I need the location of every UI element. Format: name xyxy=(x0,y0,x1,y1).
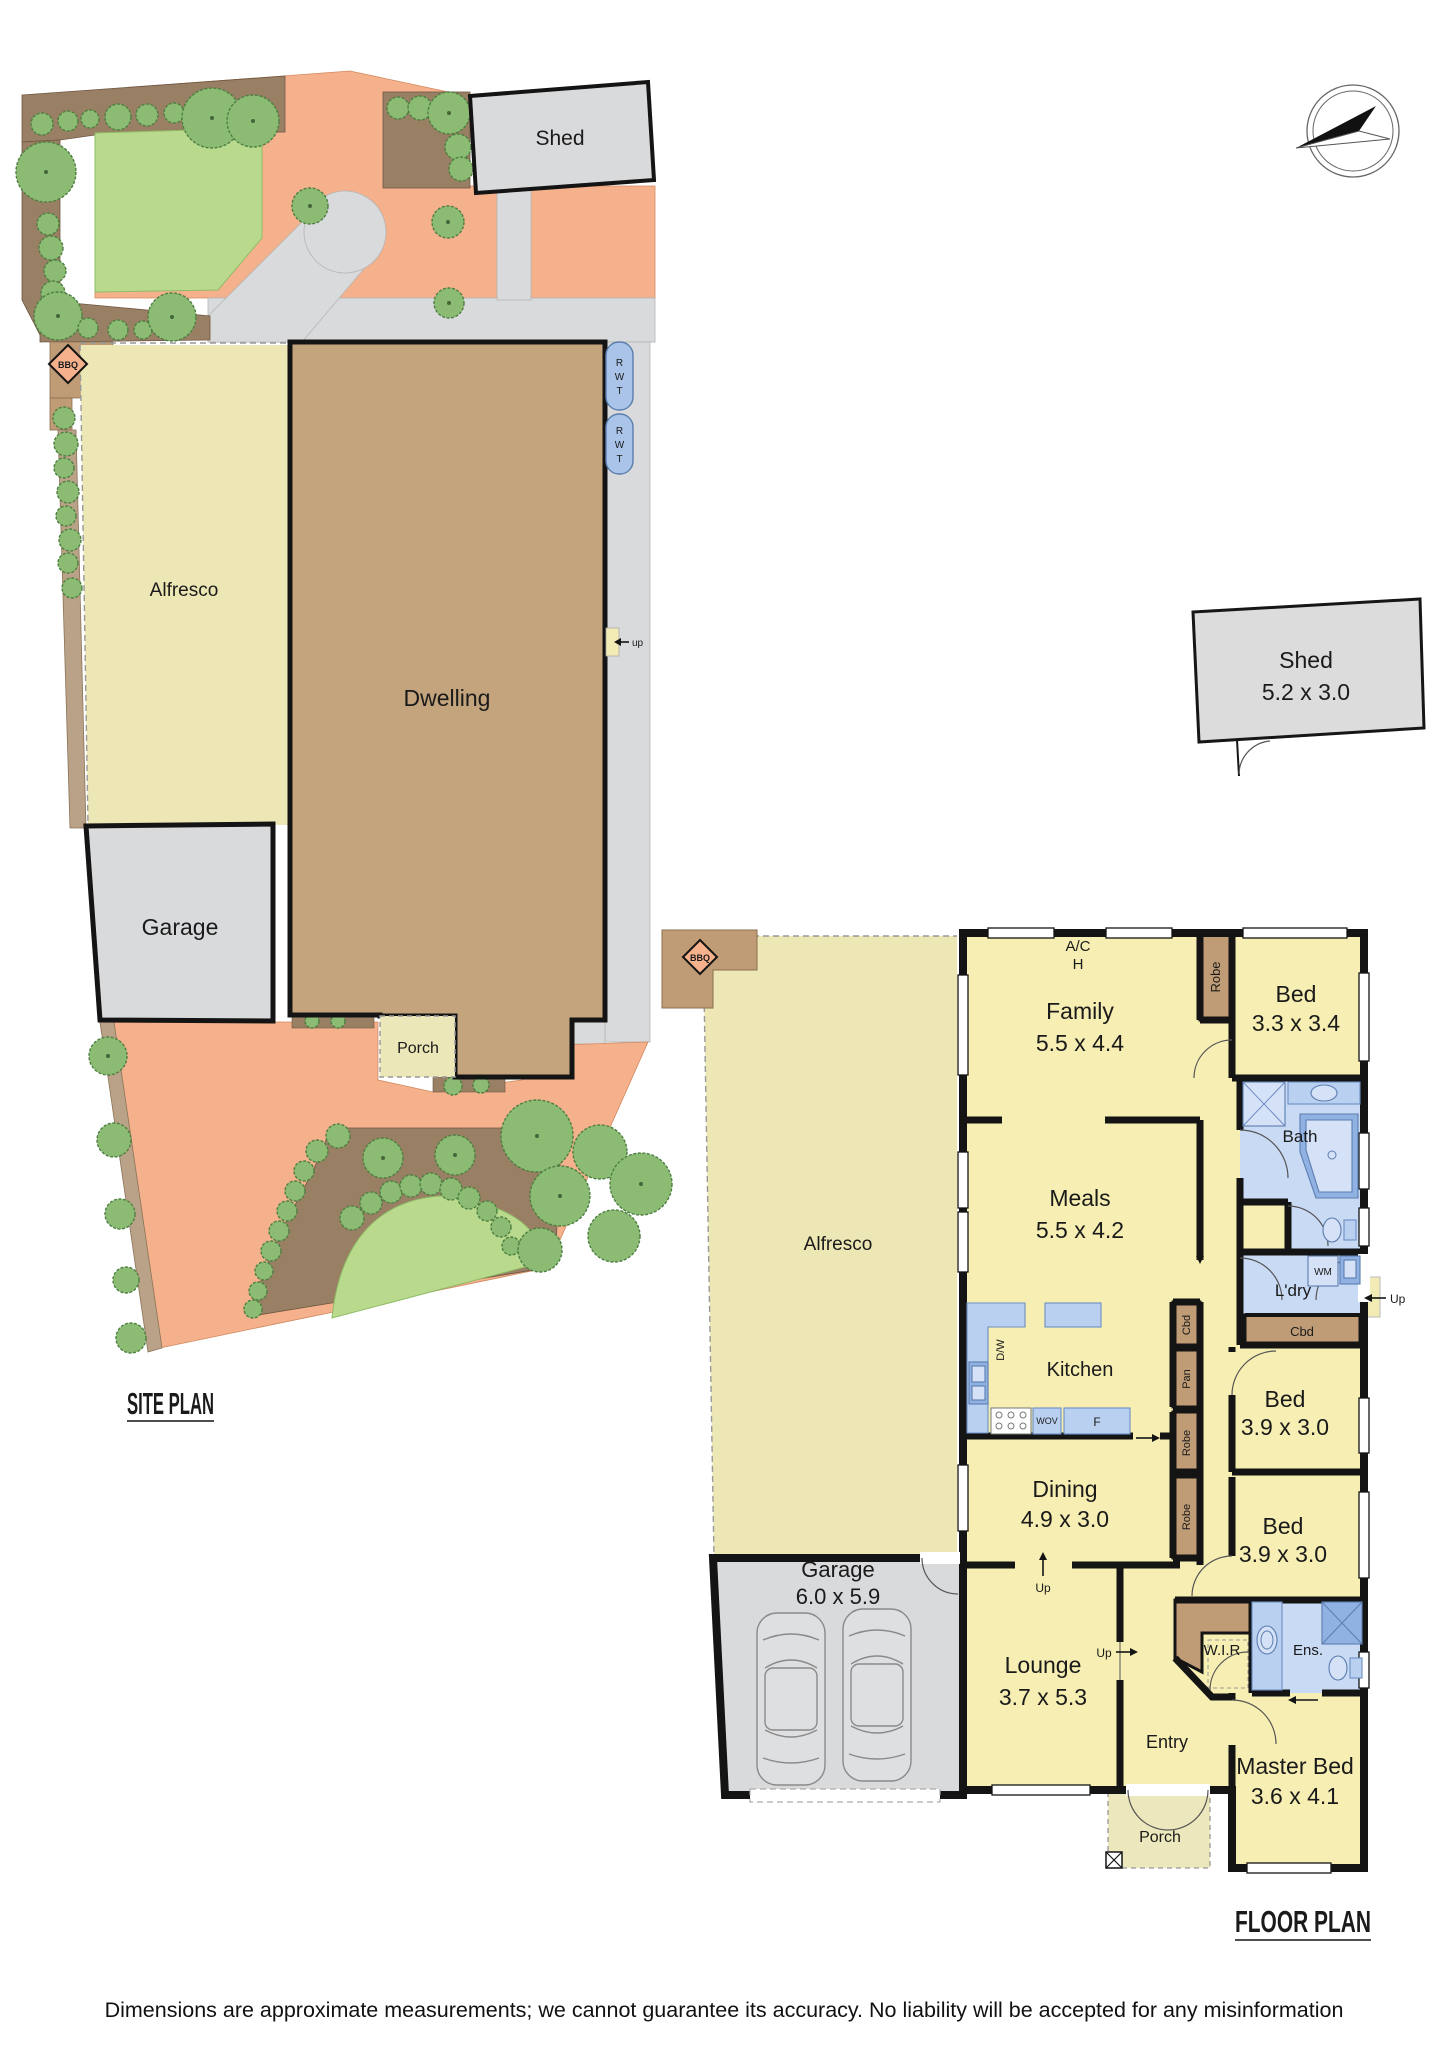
window xyxy=(958,1465,968,1531)
plans-canvas: R W T R W T up BBQ Shed Alfresco Dwellin… xyxy=(0,0,1448,2048)
robe-label: Robe xyxy=(1181,1430,1193,1456)
tree-icon xyxy=(255,1262,273,1280)
toilet-icon xyxy=(1323,1218,1341,1242)
window xyxy=(958,1212,968,1272)
wir-label: W.I.R xyxy=(1204,1642,1241,1659)
tree-icon xyxy=(136,104,158,126)
rwt-letter: T xyxy=(616,386,622,397)
rwt-letter: R xyxy=(616,426,623,437)
lounge-name: Lounge xyxy=(1005,1652,1082,1678)
detached-shed-size: 5.2 x 3.0 xyxy=(1262,679,1350,705)
robe-label: Robe xyxy=(1181,1504,1193,1530)
tree-icon xyxy=(108,320,128,340)
tree-center-dot xyxy=(56,314,60,318)
site-shed-label: Shed xyxy=(535,127,584,150)
fridge-label: F xyxy=(1093,1415,1100,1429)
tree-icon xyxy=(244,1300,262,1318)
tree-icon xyxy=(58,553,78,573)
site-plan: R W T R W T up BBQ Shed Alfresco Dwellin… xyxy=(16,71,672,1421)
tree-icon xyxy=(326,1124,350,1148)
bed-low-name: Bed xyxy=(1263,1513,1304,1539)
fp-garage-size: 6.0 x 5.9 xyxy=(796,1584,880,1609)
tree-icon xyxy=(39,236,63,260)
tree-icon xyxy=(449,157,473,181)
rwt-letter: T xyxy=(616,454,622,465)
detached-shed: Shed 5.2 x 3.0 xyxy=(1193,599,1424,776)
up-label: Up xyxy=(1390,1292,1406,1306)
tree-icon xyxy=(53,407,75,429)
tree-icon xyxy=(57,481,79,503)
tree-icon xyxy=(105,104,131,130)
ens-label: Ens. xyxy=(1293,1642,1323,1659)
bed-top-name: Bed xyxy=(1276,981,1317,1007)
window xyxy=(988,928,1054,938)
tree-center-dot xyxy=(535,1134,539,1138)
garage-side-door-opening xyxy=(920,1552,960,1564)
tree-icon xyxy=(116,1323,146,1353)
tree-icon xyxy=(31,113,53,135)
tree-icon xyxy=(400,1175,422,1197)
tree-center-dot xyxy=(308,204,312,208)
tree-center-dot xyxy=(44,170,48,174)
tree-icon xyxy=(306,1140,328,1162)
tree-icon xyxy=(294,1161,314,1181)
kitchen-sink-bowl xyxy=(972,1366,985,1382)
tree-icon xyxy=(491,1217,511,1237)
tree-icon xyxy=(113,1267,139,1293)
tree-icon xyxy=(37,213,59,235)
tree-icon xyxy=(502,1237,520,1255)
tree-icon xyxy=(105,1199,135,1229)
car-icon xyxy=(843,1609,911,1781)
tree-icon xyxy=(518,1228,562,1272)
toilet-cistern xyxy=(1344,1220,1356,1240)
tree-icon xyxy=(58,111,78,131)
family-size: 5.5 x 4.4 xyxy=(1036,1030,1124,1056)
tree-center-dot xyxy=(381,1156,385,1160)
tree-icon xyxy=(277,1201,297,1221)
tree-icon xyxy=(340,1206,364,1230)
site-plan-title: SITE PLAN xyxy=(127,1386,214,1421)
window xyxy=(1359,1133,1369,1189)
site-up-label: up xyxy=(632,638,644,649)
bbq-label: BBQ xyxy=(58,360,78,370)
shed-door-arc xyxy=(1239,741,1270,774)
kitchen-label: Kitchen xyxy=(1047,1359,1114,1381)
floorplan-page: R W T R W T up BBQ Shed Alfresco Dwellin… xyxy=(0,0,1448,2048)
site-alfresco-label: Alfresco xyxy=(150,580,219,601)
tree-icon xyxy=(249,1282,267,1300)
basin-icon xyxy=(1257,1626,1277,1654)
tree-center-dot xyxy=(251,119,255,123)
tree-icon xyxy=(420,1173,442,1195)
bed-top-size: 3.3 x 3.4 xyxy=(1252,1010,1340,1036)
cbd-v-label: Cbd xyxy=(1181,1315,1193,1335)
tree-icon xyxy=(44,260,66,282)
bed-low-size: 3.9 x 3.0 xyxy=(1239,1541,1327,1567)
site-porch-label: Porch xyxy=(397,1040,439,1057)
site-path-near-shed xyxy=(497,186,531,300)
tree-icon xyxy=(380,1181,402,1203)
window xyxy=(1359,1208,1369,1246)
disclaimer-text: Dimensions are approximate measurements;… xyxy=(0,1998,1448,2023)
tree-icon xyxy=(62,578,82,598)
up-label: Up xyxy=(1035,1581,1051,1595)
rwt-letter: W xyxy=(615,440,625,451)
bed-mid-size: 3.9 x 3.0 xyxy=(1241,1414,1329,1440)
tree-icon xyxy=(477,1201,497,1221)
wov-label: WOV xyxy=(1036,1416,1058,1426)
meals-size: 5.5 x 4.2 xyxy=(1036,1217,1124,1243)
window xyxy=(1247,1863,1331,1873)
master-name: Master Bed xyxy=(1236,1753,1354,1779)
cbd-h-label: Cbd xyxy=(1290,1324,1314,1339)
floor-plan: BBQ xyxy=(662,928,1406,1940)
toilet-icon xyxy=(1329,1656,1347,1680)
window xyxy=(1359,1398,1369,1453)
basin-icon xyxy=(1311,1085,1337,1101)
ldry-label: L'dry xyxy=(1275,1281,1312,1300)
tree-icon xyxy=(54,458,74,478)
dining-size: 4.9 x 3.0 xyxy=(1021,1506,1109,1532)
pan-label: Pan xyxy=(1181,1369,1193,1389)
garage-door xyxy=(750,1789,940,1802)
ac-label-2: H xyxy=(1073,956,1084,973)
fp-porch-label: Porch xyxy=(1139,1829,1181,1846)
up-label: Up xyxy=(1096,1646,1112,1660)
master-size: 3.6 x 4.1 xyxy=(1251,1783,1339,1809)
family-name: Family xyxy=(1046,998,1114,1024)
entry-label: Entry xyxy=(1146,1732,1188,1752)
rwt-letter: R xyxy=(616,358,623,369)
dw-label: D/W xyxy=(995,1339,1007,1361)
tree-icon xyxy=(360,1192,382,1214)
tree-center-dot xyxy=(447,111,451,115)
tree-icon xyxy=(588,1210,640,1262)
detached-shed-name: Shed xyxy=(1279,647,1333,673)
tree-center-dot xyxy=(170,315,174,319)
lounge-size: 3.7 x 5.3 xyxy=(999,1684,1087,1710)
window xyxy=(1106,928,1172,938)
window xyxy=(958,975,968,1075)
fp-alfresco-label: Alfresco xyxy=(804,1234,873,1255)
fp-bbq-label: BBQ xyxy=(690,953,710,963)
north-arrow-compass xyxy=(1296,85,1399,177)
tree-icon xyxy=(164,103,184,123)
tree-center-dot xyxy=(447,301,451,305)
tree-icon xyxy=(81,110,99,128)
tree-center-dot xyxy=(558,1194,562,1198)
tree-icon xyxy=(269,1221,289,1241)
rwt-letter: W xyxy=(615,372,625,383)
tree-center-dot xyxy=(106,1054,110,1058)
site-path-bottom xyxy=(572,1020,605,1044)
bed-mid-name: Bed xyxy=(1265,1386,1306,1412)
floor-plan-title: FLOOR PLAN xyxy=(1235,1904,1371,1939)
tree-icon xyxy=(458,1187,480,1209)
tree-center-dot xyxy=(639,1182,643,1186)
tree-icon xyxy=(78,318,98,338)
dining-name: Dining xyxy=(1032,1476,1097,1502)
site-garage-label: Garage xyxy=(142,914,219,940)
kitchen-island xyxy=(1045,1303,1101,1327)
window xyxy=(1359,1492,1369,1578)
tree-icon xyxy=(97,1123,131,1157)
tree-icon xyxy=(56,506,76,526)
tree-icon xyxy=(59,529,81,551)
tree-icon xyxy=(54,432,78,456)
car-icon xyxy=(757,1613,825,1785)
tree-center-dot xyxy=(453,1153,457,1157)
window xyxy=(1243,928,1347,938)
tree-center-dot xyxy=(210,116,214,120)
entry-door-opening xyxy=(1126,1784,1210,1796)
fp-garage-name: Garage xyxy=(801,1557,874,1582)
laundry-trough-bowl xyxy=(1344,1260,1356,1278)
tree-icon xyxy=(445,134,471,160)
ac-label: A/C xyxy=(1065,938,1090,955)
wm-label: WM xyxy=(1314,1267,1332,1278)
tree-icon xyxy=(261,1241,281,1261)
window xyxy=(1359,973,1369,1061)
kitchen-sink-bowl xyxy=(972,1386,985,1400)
robe-label: Robe xyxy=(1208,961,1223,992)
site-dwelling-label: Dwelling xyxy=(404,685,491,711)
bath-label: Bath xyxy=(1283,1127,1318,1146)
window xyxy=(992,1785,1090,1795)
tree-icon xyxy=(444,1077,462,1095)
site-back-lawn xyxy=(95,128,262,292)
toilet-cistern xyxy=(1350,1658,1362,1678)
meals-name: Meals xyxy=(1049,1185,1110,1211)
window xyxy=(958,1152,968,1208)
tree-icon xyxy=(387,97,409,119)
tree-center-dot xyxy=(446,220,450,224)
tree-icon xyxy=(285,1181,305,1201)
